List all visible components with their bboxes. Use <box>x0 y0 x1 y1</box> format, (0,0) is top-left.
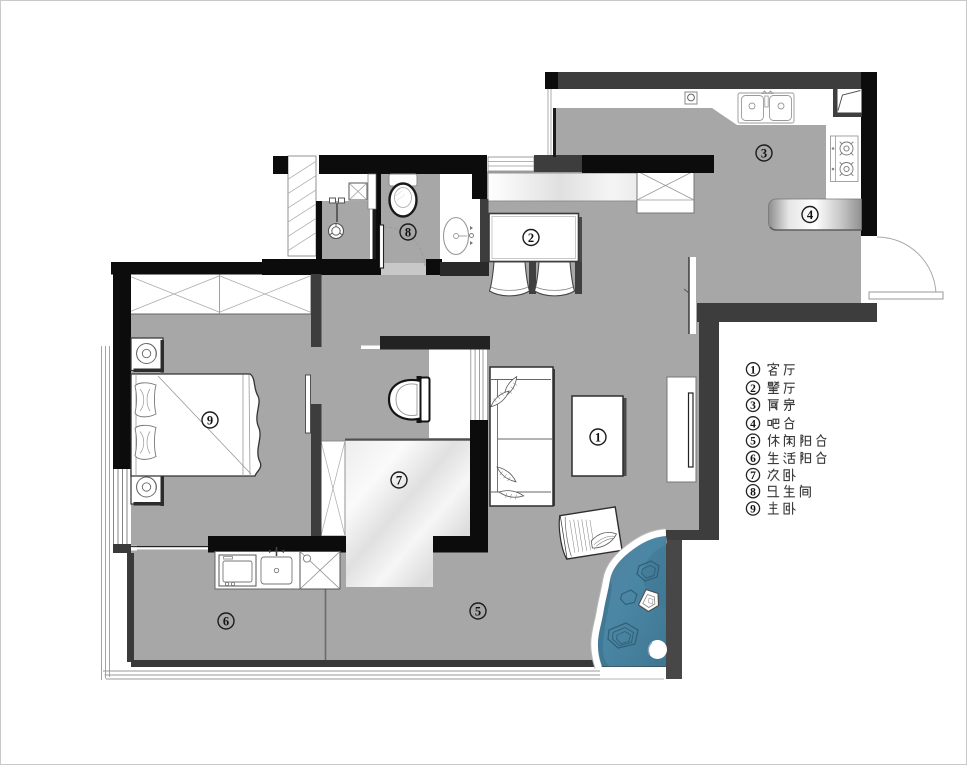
svg-text:4: 4 <box>750 418 756 430</box>
svg-text:7: 7 <box>396 474 402 488</box>
svg-text:9: 9 <box>750 504 756 516</box>
svg-text:8: 8 <box>750 486 756 498</box>
svg-text:3: 3 <box>750 400 756 412</box>
svg-text:3: 3 <box>761 147 767 161</box>
svg-text:4: 4 <box>807 208 814 222</box>
svg-text:5: 5 <box>750 436 756 448</box>
svg-text:1: 1 <box>595 431 601 445</box>
svg-text:5: 5 <box>475 605 481 619</box>
svg-text:9: 9 <box>207 414 213 428</box>
svg-text:8: 8 <box>405 226 411 240</box>
svg-text:6: 6 <box>750 453 756 465</box>
svg-text:7: 7 <box>750 470 756 482</box>
svg-text:2: 2 <box>750 383 756 395</box>
svg-text:6: 6 <box>223 615 229 629</box>
svg-text:2: 2 <box>528 231 534 245</box>
svg-text:1: 1 <box>750 364 756 376</box>
